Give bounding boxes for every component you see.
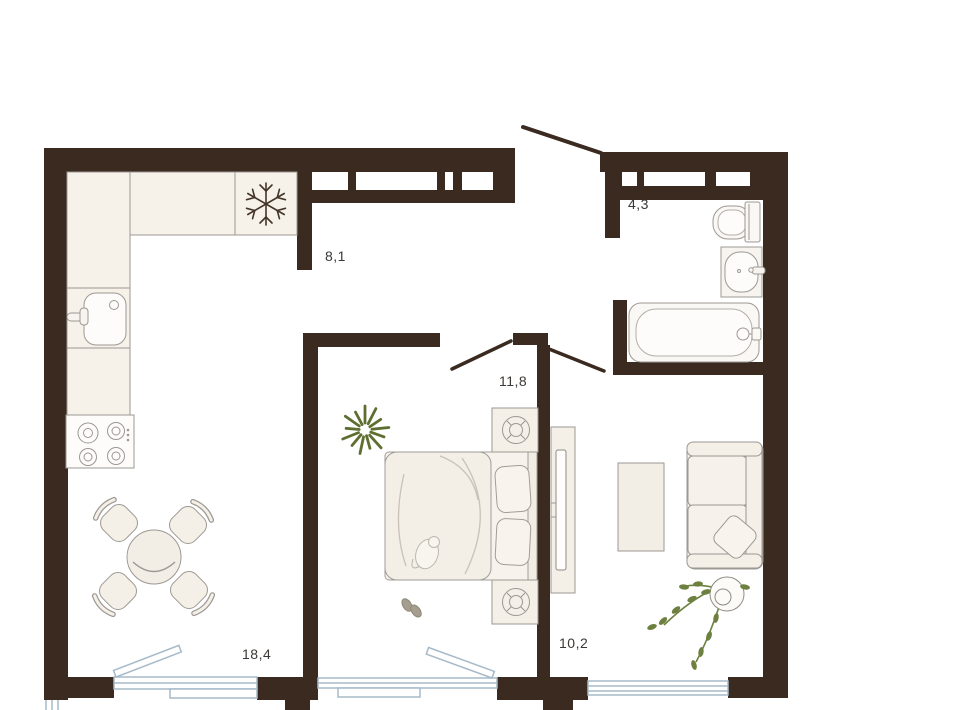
- nightstand: [492, 580, 538, 624]
- dining-table-icon: [90, 495, 216, 618]
- pillow: [494, 465, 531, 513]
- room-label-kitchen: 18,4: [242, 646, 271, 662]
- potted-plant-icon: [646, 577, 750, 671]
- coffee-table: [618, 463, 664, 551]
- window-sill-kitchen: [170, 689, 257, 698]
- nightstand: [492, 408, 538, 452]
- double-bed-icon: [385, 452, 537, 580]
- room-label-hallway: 8,1: [325, 248, 346, 264]
- entrance-door-leaf: [523, 127, 601, 153]
- stove-burners-icon: [66, 415, 134, 468]
- pillow: [495, 518, 531, 566]
- sofa-icon: [687, 442, 763, 569]
- tv-unit-icon: [551, 427, 575, 593]
- duvet: [385, 452, 491, 580]
- room-label-bedroom: 11,8: [499, 373, 527, 389]
- living-room-door-leaf: [549, 349, 604, 371]
- room-label-living-room: 10,2: [559, 635, 588, 651]
- room-label-bathroom: 4,3: [628, 196, 649, 212]
- potted-plant-icon: [343, 406, 389, 453]
- window-living-room: [588, 681, 728, 695]
- balcony-glazing: [46, 645, 728, 710]
- window-sill-bedroom: [338, 688, 420, 697]
- washbasin-icon: [721, 247, 765, 297]
- bedroom-door-leaf: [452, 341, 511, 369]
- toilet-icon: [713, 202, 760, 242]
- slippers: [400, 597, 424, 619]
- tv-screen: [556, 450, 566, 570]
- balcony-door-bedroom: [426, 647, 494, 678]
- bathtub-icon: [629, 303, 761, 362]
- balcony-door-kitchen: [113, 645, 181, 677]
- floor-plan-page: 8,1 4,3 11,8 18,4 10,2: [0, 0, 960, 710]
- floor-plan: 8,1 4,3 11,8 18,4 10,2: [0, 0, 960, 710]
